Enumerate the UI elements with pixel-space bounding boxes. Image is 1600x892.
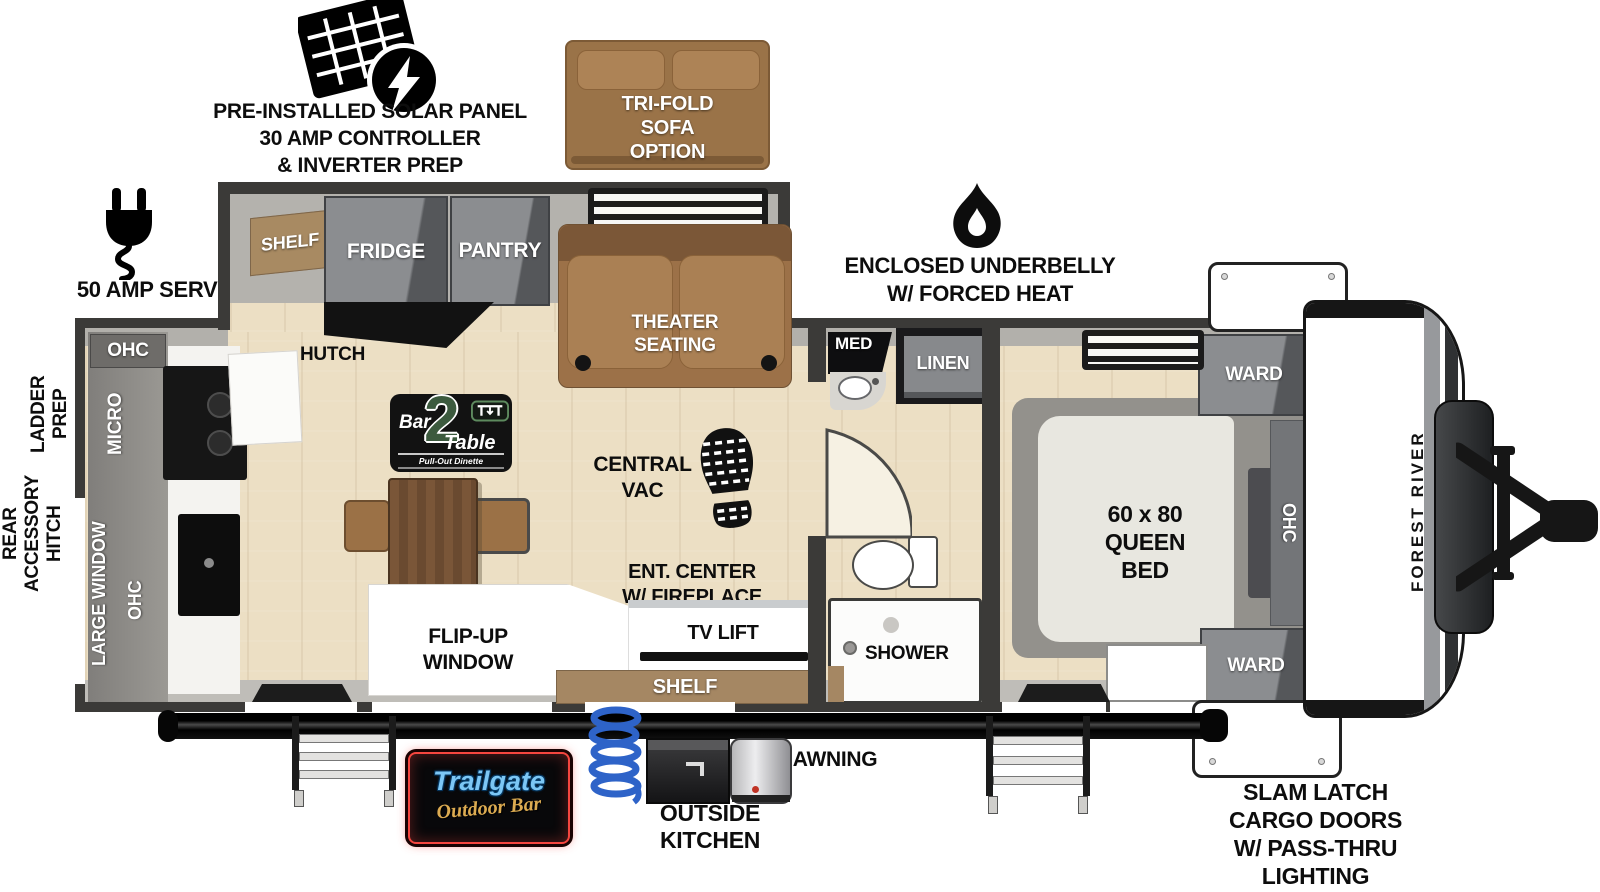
window-slats (594, 194, 762, 228)
ward-label: WARD (1225, 365, 1282, 386)
tank-valve (752, 786, 759, 793)
step-rail (292, 716, 299, 790)
solar-note-line: PRE-INSTALLED SOLAR PANEL (195, 98, 545, 125)
step-rail (986, 716, 993, 796)
screw (1318, 758, 1325, 765)
hutch-label: HUTCH (300, 344, 365, 365)
tv-bar (640, 652, 808, 661)
queen-bed-label: 60 x 80 QUEEN BED (1078, 500, 1212, 584)
window-slats (1088, 336, 1198, 364)
bath-cabinet-sliver (828, 666, 844, 702)
theater-seating-label: THEATER SEATING (559, 311, 791, 357)
trifold-sofa-label: TRI-FOLD SOFA OPTION (567, 92, 768, 164)
entry-step-well (252, 684, 352, 702)
wardrobe-bottom: WARD (1200, 628, 1312, 704)
step-foot (988, 796, 998, 814)
step-rail (389, 716, 396, 790)
med-label: MED (835, 335, 872, 354)
screw (1209, 758, 1216, 765)
bath-wall (808, 536, 826, 712)
rear-accessory-hitch-label: REAR ACCESSORY HITCH (0, 448, 66, 620)
shelf-bottom: SHELF (556, 670, 814, 704)
awning-end-cap (1200, 709, 1228, 742)
bath-door-swing (824, 424, 912, 540)
bedroom-step-well (1018, 684, 1110, 702)
linen-label: LINEN (916, 354, 969, 374)
bar2table-table: Table (444, 432, 496, 455)
sofa-back-pillow (577, 50, 665, 90)
outside-kitchen-griddle (646, 738, 730, 804)
bedroom-window-bottom (1106, 644, 1208, 702)
trifold-sofa-option: TRI-FOLD SOFA OPTION (565, 40, 770, 170)
large-window-opening (75, 498, 85, 684)
tv-lift-label: TV LIFT (648, 622, 798, 644)
entry-door-opening (245, 702, 357, 712)
bar2table-bar: Bar (399, 412, 431, 434)
bedroom-window-opening (1110, 702, 1204, 712)
hitch-a-frame (1456, 428, 1600, 606)
step-tread (299, 770, 389, 779)
entry-steps (292, 716, 396, 808)
kitchen-sink (178, 514, 240, 616)
slam-latch-note: SLAM LATCH CARGO DOORS W/ PASS-THRU LIGH… (1198, 778, 1433, 890)
griddle-faucet (700, 762, 704, 776)
dinette-chair (472, 498, 530, 554)
boot-print-icon (698, 426, 760, 534)
bedroom-wall (982, 328, 1000, 712)
awning-end-cap (158, 710, 178, 742)
shelf-cabinet: SHELF (250, 210, 330, 276)
bath-wall (808, 328, 826, 382)
linen-cabinet: LINEN (904, 336, 982, 398)
shower-stall: SHOWER (828, 598, 982, 704)
bar2table-logo: 2 Bar Table Pull-Out Dinette (390, 394, 512, 472)
solar-note-line: 30 AMP CONTROLLER (195, 125, 545, 152)
pantry-label: PANTRY (459, 239, 542, 262)
bedroom-ohc-label: OHC (1278, 478, 1298, 568)
power-plug-icon (98, 188, 160, 280)
theater-seating-sofa: THEATER SEATING (558, 224, 792, 388)
shower-label: SHOWER (865, 643, 949, 664)
flip-up-window-opening (372, 702, 552, 712)
screw (1328, 273, 1335, 280)
outside-kitchen-label: OUTSIDE KITCHEN (630, 800, 790, 854)
floorplan-canvas: PRE-INSTALLED SOLAR PANEL 30 AMP CONTROL… (0, 0, 1600, 892)
step-foot (1078, 796, 1088, 814)
entry-steps (986, 716, 1090, 816)
wardrobe-top: WARD (1198, 334, 1310, 416)
brand-label: FOREST RIVER (1408, 361, 1428, 661)
step-foot (294, 790, 304, 807)
central-vac-label: CENTRAL VAC (585, 452, 700, 504)
bedroom-window-top (1082, 330, 1204, 370)
pantry: PANTRY (450, 196, 550, 306)
solar-note-line: & INVERTER PREP (195, 152, 545, 179)
burner (207, 430, 233, 456)
step-tread (299, 734, 389, 743)
step-foot (384, 790, 394, 807)
flip-up-window-label: FLIP-UP WINDOW (388, 624, 548, 676)
micro-label: MICRO (106, 374, 127, 474)
pullout-dinette-icon (471, 400, 509, 422)
solar-note: PRE-INSTALLED SOLAR PANEL 30 AMP CONTROL… (195, 98, 545, 179)
med-cabinet: MED (828, 332, 892, 374)
flame-icon (947, 182, 1007, 252)
ward-label: WARD (1227, 656, 1284, 677)
awning-label: AWNING (780, 748, 890, 772)
kitchen-ohc-cabinet: OHC (90, 334, 166, 368)
fridge-label: FRIDGE (347, 240, 425, 263)
large-window-label: LARGE WINDOW (90, 496, 110, 692)
shelf-bottom-label: SHELF (653, 676, 718, 698)
step-tread (993, 736, 1083, 745)
step-tread (299, 752, 389, 761)
bath-sink (838, 376, 872, 400)
bedroom-door-opening (1002, 702, 1106, 712)
dinette-chair (344, 500, 390, 552)
griddle-top-strip (648, 740, 728, 750)
toilet-bowl (852, 540, 914, 590)
cupholder (575, 355, 591, 371)
underbelly-note: ENCLOSED UNDERBELLY W/ FORCED HEAT (800, 252, 1160, 308)
shower-drain (883, 617, 899, 633)
fridge: FRIDGE (324, 196, 448, 308)
kitchen-ohc-side-label: OHC (126, 548, 146, 652)
sofa-back-pillow (672, 50, 760, 90)
step-tread (993, 756, 1083, 765)
shelf-label: SHELF (261, 230, 319, 256)
cupholder (761, 355, 777, 371)
ohc-label: OHC (107, 341, 149, 362)
step-rail (1083, 716, 1090, 796)
faucet (872, 378, 879, 385)
screw (1221, 273, 1228, 280)
outside-kitchen-tank (730, 738, 792, 804)
water-hose-icon (586, 706, 646, 808)
faucet (204, 558, 214, 568)
trailgate-outdoor-bar-logo: Trailgate Outdoor Bar (408, 752, 570, 844)
hutch-counter (228, 350, 303, 446)
step-tread (993, 776, 1083, 785)
shower-head (843, 641, 857, 655)
bar2table-tagline: Pull-Out Dinette (398, 453, 504, 469)
